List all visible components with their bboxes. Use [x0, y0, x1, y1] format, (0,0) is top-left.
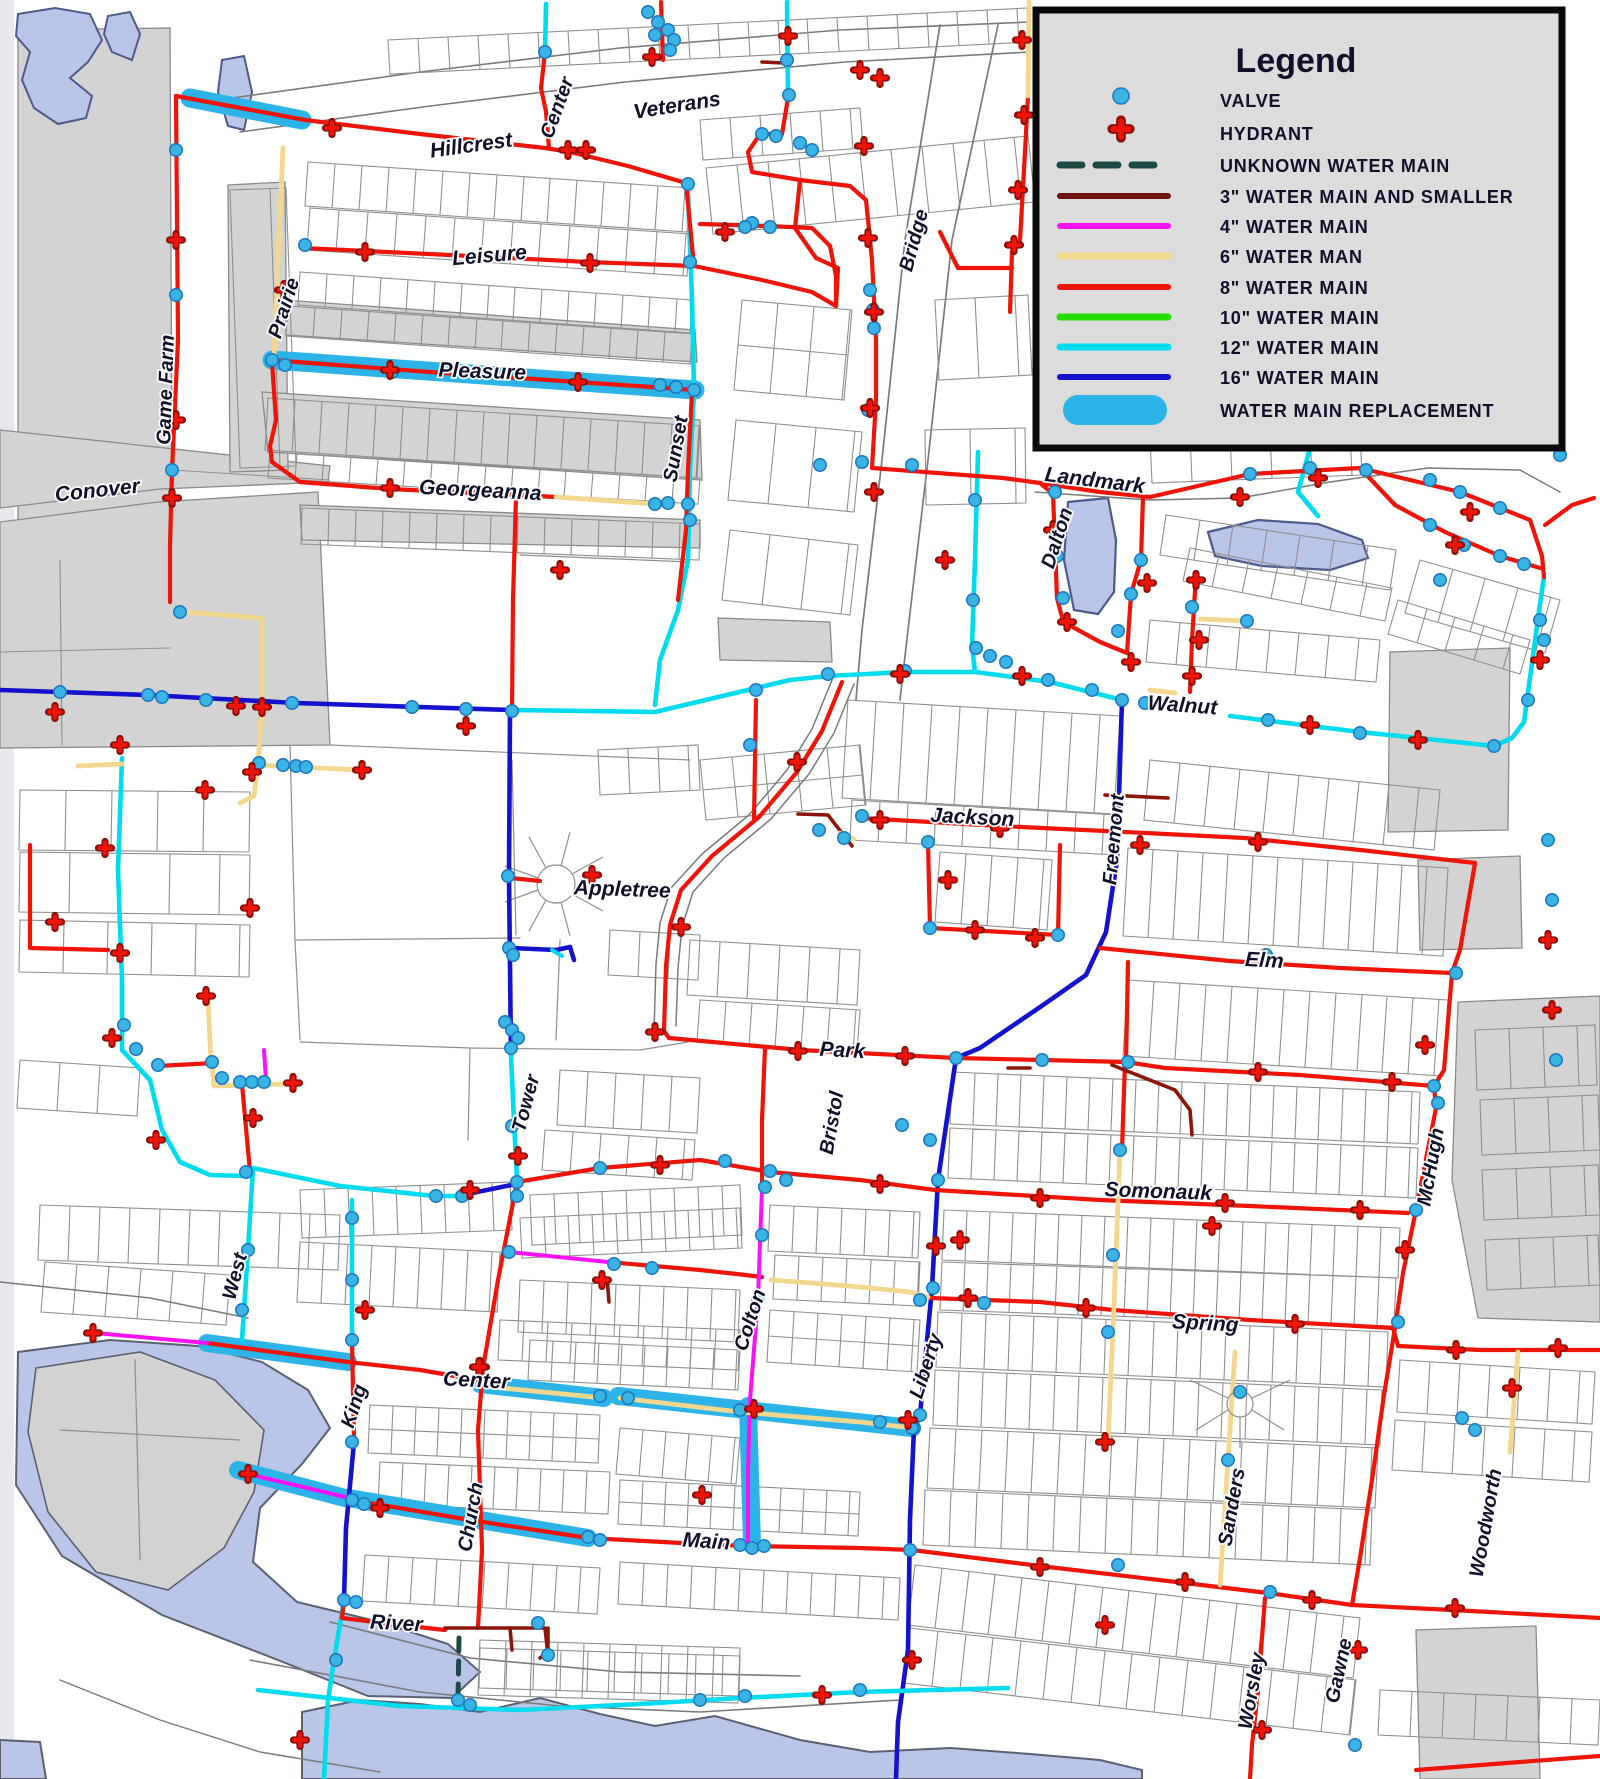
- svg-text:Pleasure: Pleasure: [438, 358, 527, 384]
- svg-text:WATER MAIN REPLACEMENT: WATER MAIN REPLACEMENT: [1220, 401, 1494, 421]
- svg-text:UNKNOWN WATER MAIN: UNKNOWN WATER MAIN: [1220, 156, 1450, 176]
- svg-text:Walnut: Walnut: [1147, 692, 1219, 720]
- svg-text:4" WATER MAIN: 4" WATER MAIN: [1220, 217, 1369, 237]
- svg-text:Legend: Legend: [1236, 42, 1357, 80]
- svg-text:8" WATER MAIN: 8" WATER MAIN: [1220, 278, 1369, 298]
- svg-text:Park: Park: [819, 1038, 867, 1063]
- svg-text:Center: Center: [443, 1367, 512, 1394]
- svg-text:Game Farm: Game Farm: [153, 334, 179, 445]
- svg-text:Jackson: Jackson: [930, 804, 1015, 831]
- svg-text:River: River: [370, 1611, 425, 1637]
- svg-text:Appletree: Appletree: [572, 876, 671, 902]
- svg-text:Spring: Spring: [1172, 1310, 1240, 1336]
- svg-text:Elm: Elm: [1245, 948, 1285, 973]
- svg-text:HYDRANT: HYDRANT: [1220, 124, 1314, 144]
- svg-text:Somonauk: Somonauk: [1104, 1178, 1213, 1205]
- svg-text:6" WATER MAN: 6" WATER MAN: [1220, 247, 1363, 267]
- svg-text:16" WATER MAIN: 16" WATER MAIN: [1220, 368, 1379, 388]
- svg-text:Main: Main: [682, 1528, 731, 1554]
- svg-text:10" WATER MAIN: 10" WATER MAIN: [1220, 308, 1379, 328]
- svg-text:3" WATER MAIN AND SMALLER: 3" WATER MAIN AND SMALLER: [1220, 187, 1514, 207]
- svg-text:VALVE: VALVE: [1220, 91, 1281, 111]
- svg-text:12" WATER MAIN: 12" WATER MAIN: [1220, 338, 1379, 358]
